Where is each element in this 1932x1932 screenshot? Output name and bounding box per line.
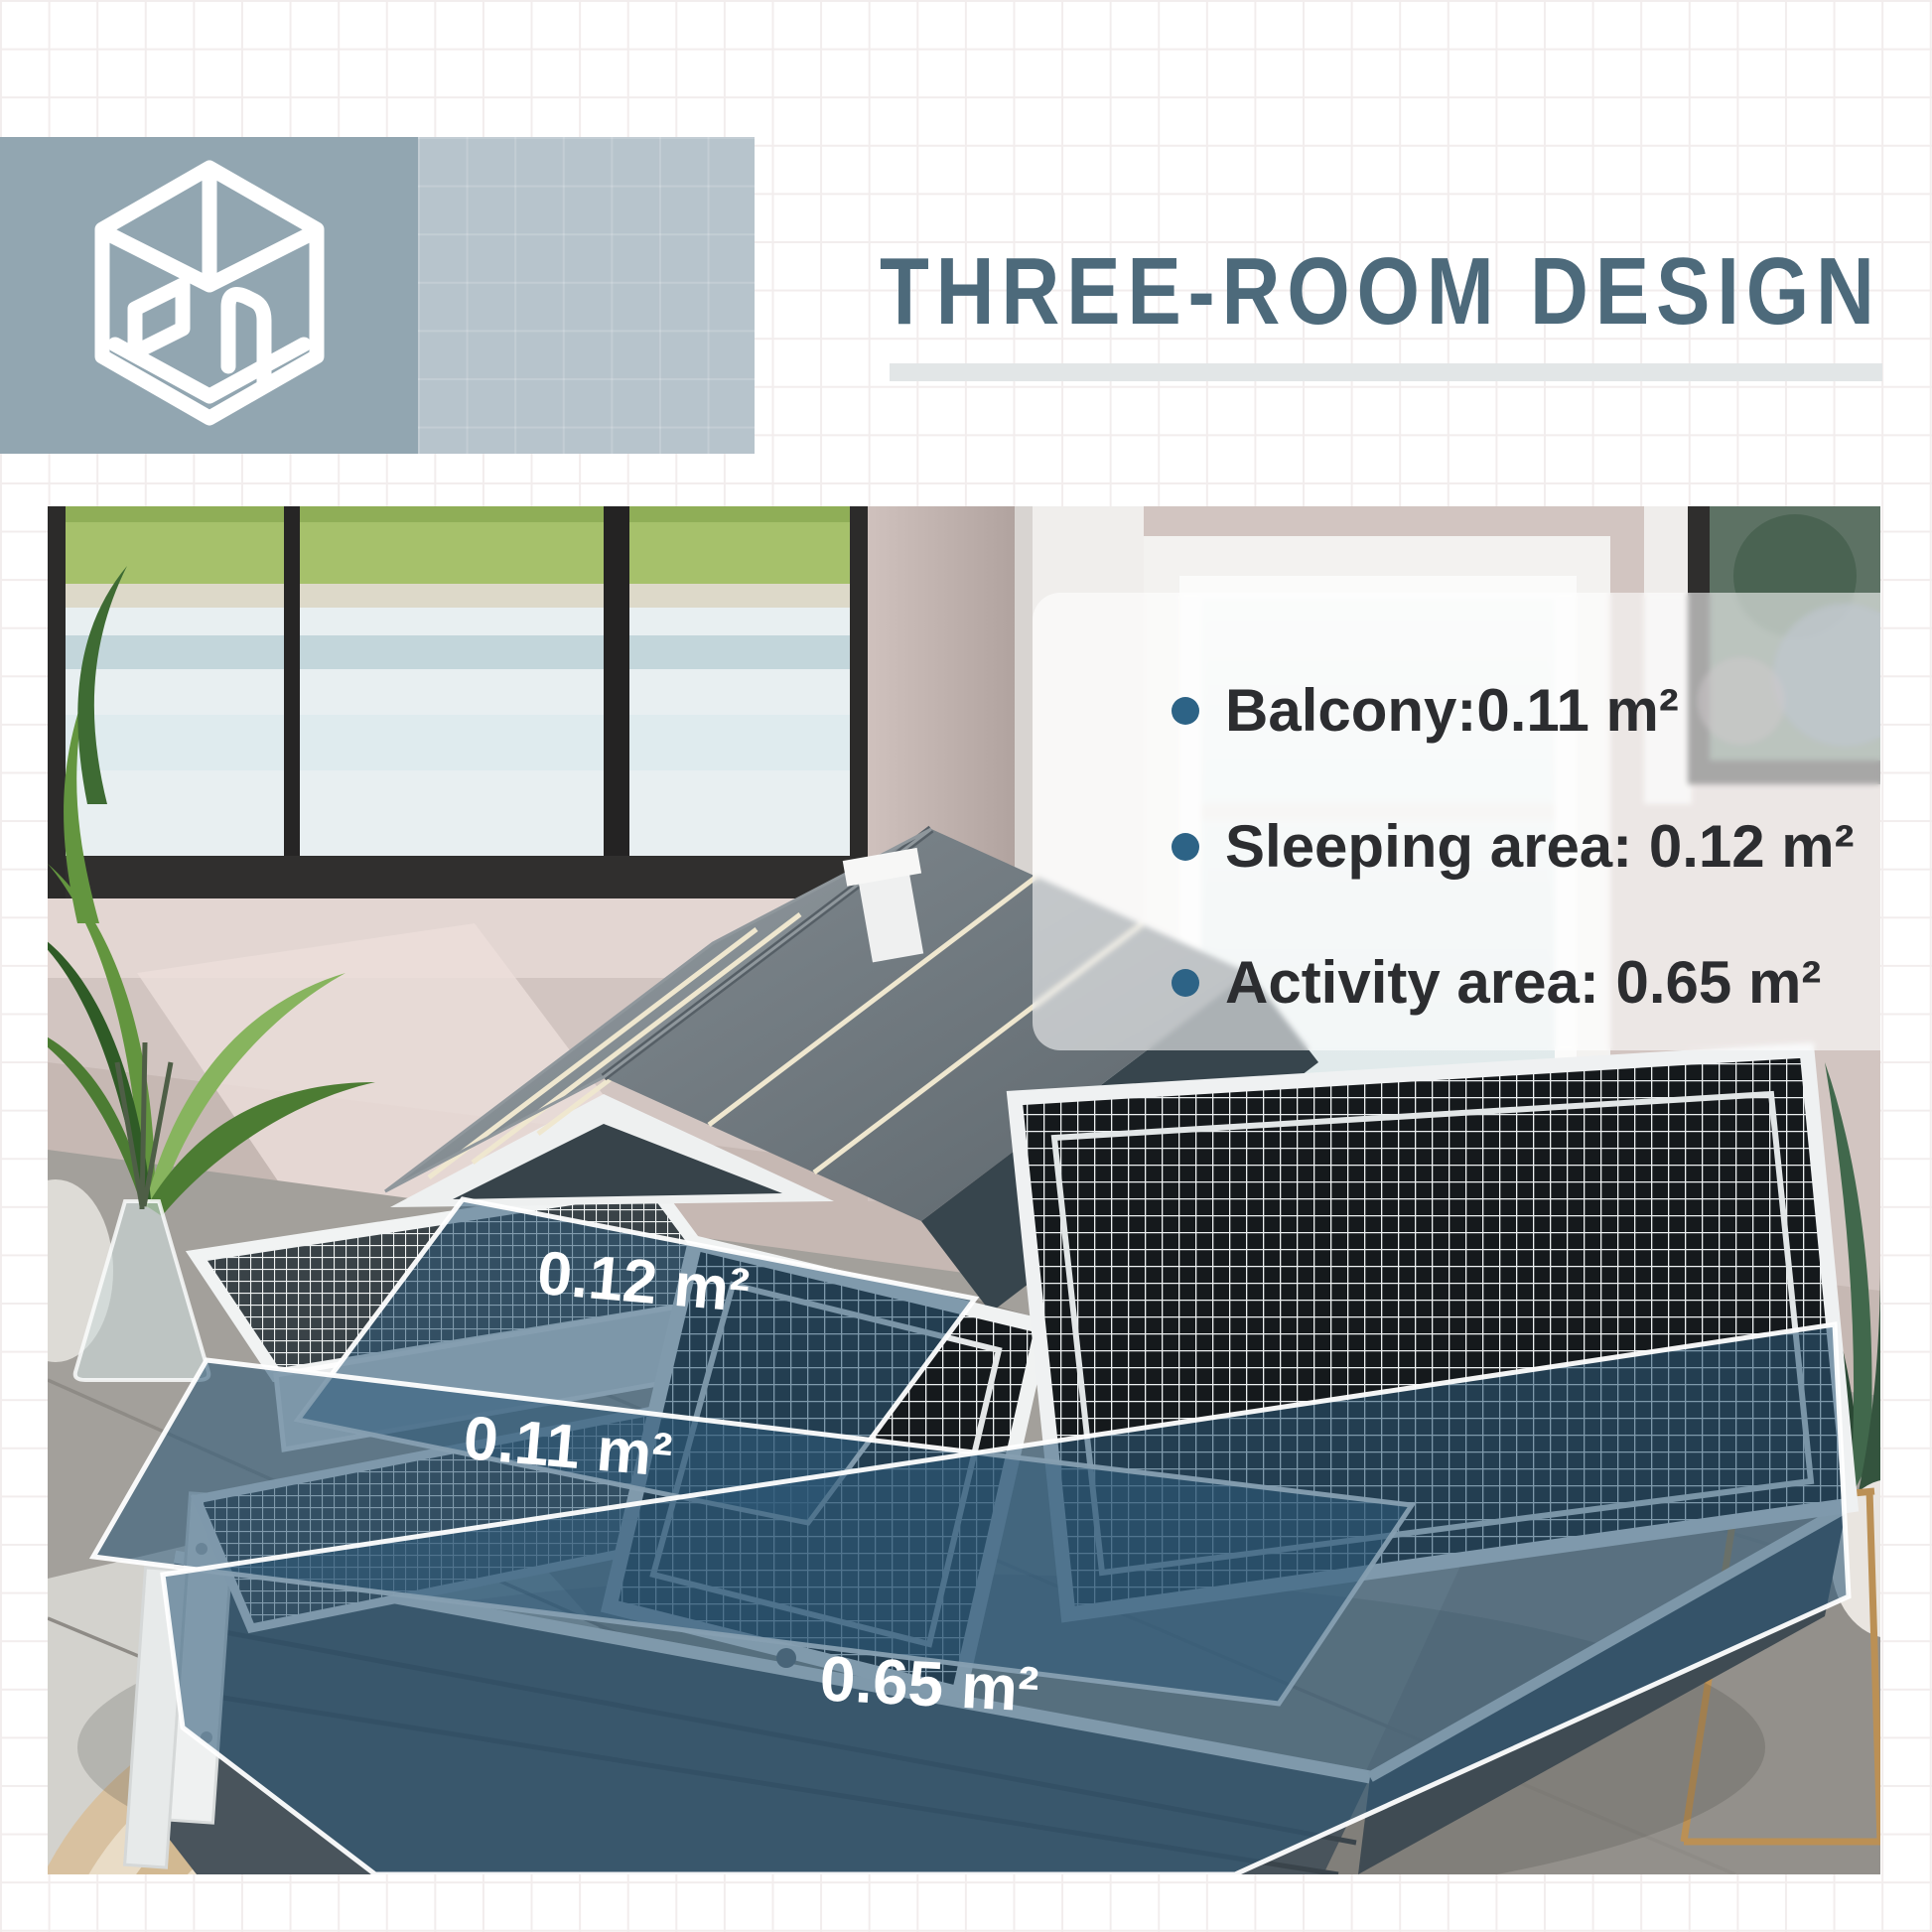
list-item-activity-area: Activity area: 0.65 m² xyxy=(1033,948,1880,1017)
logo-accent-block xyxy=(418,137,755,454)
activity-area-label: 0.65 m² xyxy=(818,1642,1040,1725)
page-title: THREE-ROOM DESIGN xyxy=(880,244,1881,340)
balcony-size-text: Balcony:0.11 m² xyxy=(1225,676,1679,745)
area-info-panel: Balcony:0.11 m² Sleeping area: 0.12 m² A… xyxy=(1033,593,1880,1050)
logo-block xyxy=(0,137,418,454)
sleeping-area-size-text: Sleeping area: 0.12 m² xyxy=(1225,812,1855,881)
left-window xyxy=(48,506,868,901)
brand-logo-icon xyxy=(85,158,334,433)
bullet-icon xyxy=(1172,697,1199,725)
title-underline xyxy=(890,363,1882,381)
bullet-icon xyxy=(1172,833,1199,861)
bullet-icon xyxy=(1172,969,1199,997)
list-item-sleeping-area: Sleeping area: 0.12 m² xyxy=(1033,812,1880,881)
list-item-balcony: Balcony:0.11 m² xyxy=(1033,676,1880,745)
activity-area-size-text: Activity area: 0.65 m² xyxy=(1225,948,1821,1017)
